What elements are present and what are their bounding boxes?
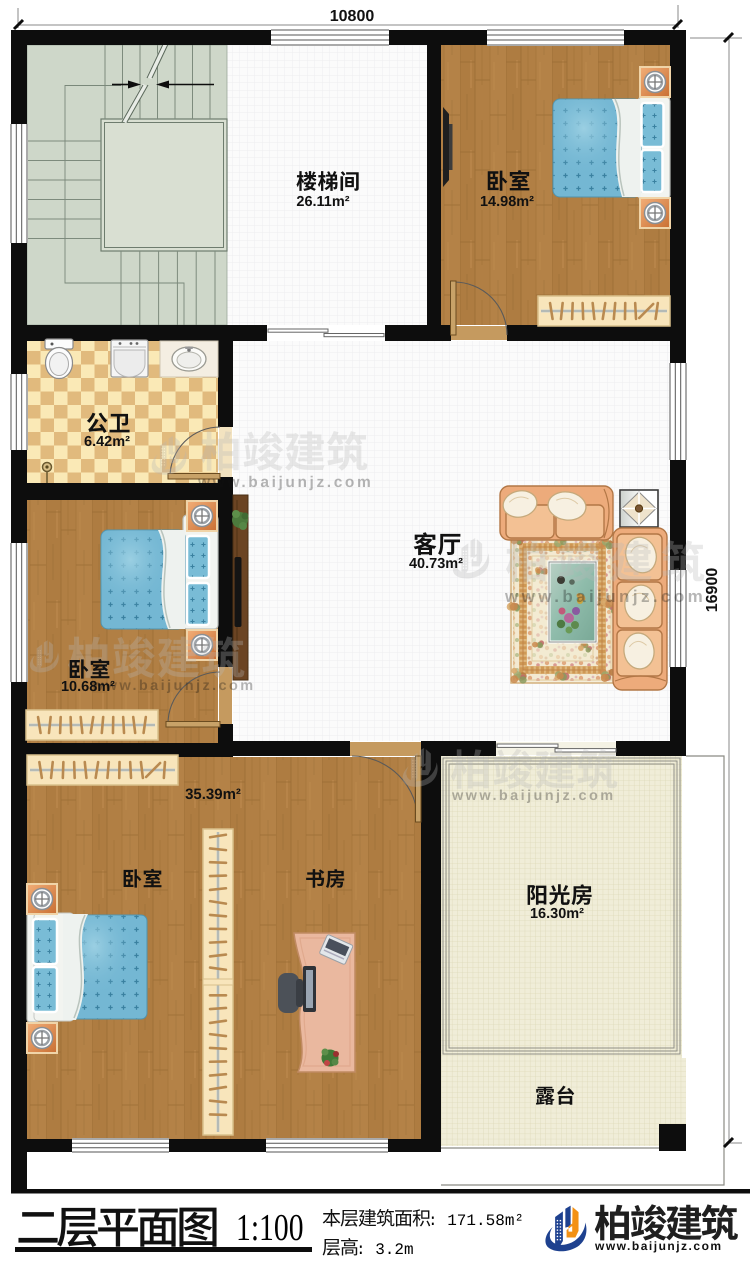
- svg-text:10800: 10800: [330, 8, 375, 25]
- svg-text:www.baijunjz.com: www.baijunjz.com: [451, 788, 616, 804]
- svg-text:10.68m²: 10.68m²: [61, 679, 115, 695]
- svg-text:35.39m²: 35.39m²: [185, 786, 241, 803]
- svg-text:1:100: 1:100: [236, 1207, 304, 1249]
- svg-text:: 171.58m²: : 171.58m²: [428, 1212, 524, 1230]
- svg-text:www.baijunjz.com: www.baijunjz.com: [91, 678, 256, 694]
- svg-text:www.baijunjz.com: www.baijunjz.com: [197, 474, 373, 491]
- svg-text:16900: 16900: [704, 568, 721, 613]
- svg-text:www.baijunjz.com: www.baijunjz.com: [594, 1239, 723, 1253]
- svg-text:6.42m²: 6.42m²: [84, 434, 130, 450]
- svg-text:: 3.2m: : 3.2m: [356, 1241, 414, 1259]
- svg-text:www.baijunjz.com: www.baijunjz.com: [504, 587, 706, 606]
- svg-text:14.98m²: 14.98m²: [480, 194, 534, 210]
- svg-text:26.11m²: 26.11m²: [296, 194, 349, 210]
- svg-text:16.30m²: 16.30m²: [530, 906, 584, 922]
- svg-text:40.73m²: 40.73m²: [409, 556, 463, 572]
